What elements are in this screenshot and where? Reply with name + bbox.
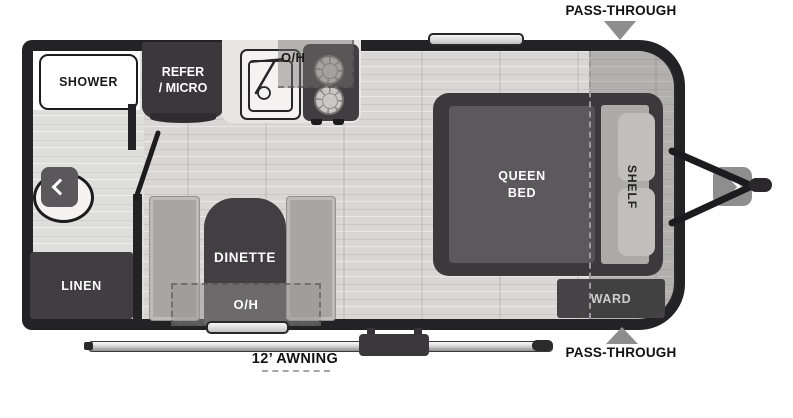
shower-pan: SHOWER [39, 54, 138, 110]
linen-label: LINEN [61, 279, 102, 293]
pass-through-zone [589, 51, 676, 319]
refer-door-arc [150, 113, 216, 123]
chevron-right-icon [724, 178, 741, 195]
pass-through-bottom-label: PASS-THROUGH [536, 345, 706, 360]
bathroom-wall-lower [133, 194, 142, 326]
chevron-left-icon [51, 179, 68, 196]
tongue-cover [713, 167, 752, 206]
mattress: QUEEN BED [449, 106, 595, 263]
refer-micro-label: REFER / MICRO [159, 64, 208, 97]
awning-end-cap [84, 342, 93, 350]
dinette-overhead-zone: O/H [171, 283, 321, 326]
entry-door [206, 321, 289, 334]
hitch-coupler [749, 178, 772, 192]
queen-bed-label: QUEEN BED [498, 168, 545, 201]
stove-knob [311, 119, 322, 125]
awning-underline [262, 370, 330, 372]
dinette-overhead-label: O/H [234, 297, 259, 312]
kitchen-overhead-label: O/H [281, 50, 305, 65]
toilet-tank [41, 167, 78, 207]
shower-label: SHOWER [59, 75, 118, 89]
bathroom-wall-upper [128, 104, 136, 150]
pass-through-bottom-arrow-icon [606, 327, 638, 344]
floorplan-canvas: SHOWER REFER / MICRO O/H LINEN DINETTE O… [0, 0, 793, 418]
pass-through-top-label: PASS-THROUGH [536, 3, 706, 18]
pass-through-top-arrow-icon [604, 21, 636, 40]
dinette-label: DINETTE [204, 250, 286, 265]
linen-cabinet: LINEN [30, 252, 133, 319]
burner-icon [314, 85, 344, 115]
refer-micro-cabinet: REFER / MICRO [142, 42, 224, 118]
stove-knob [333, 119, 344, 125]
front-window [428, 33, 524, 46]
awning-label: 12’ AWNING [220, 351, 370, 367]
